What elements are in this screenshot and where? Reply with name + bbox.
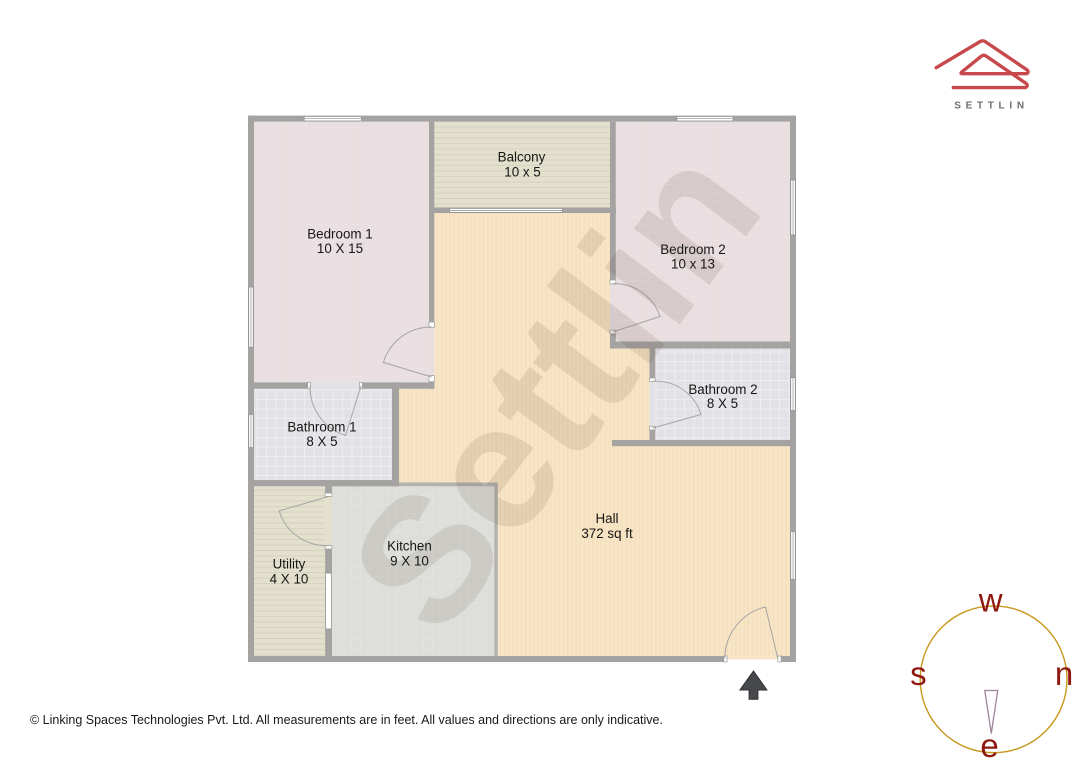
svg-text:© Linking Spaces Technologies: © Linking Spaces Technologies Pvt. Ltd. … (30, 713, 663, 727)
svg-text:Bathroom 2: Bathroom 2 (688, 382, 757, 397)
svg-text:10 x 13: 10 x 13 (671, 256, 715, 271)
svg-text:w: w (978, 582, 1003, 619)
svg-text:10 x 5: 10 x 5 (504, 164, 540, 179)
svg-text:8 X 5: 8 X 5 (306, 434, 337, 449)
svg-text:Hall: Hall (595, 511, 618, 526)
svg-text:372 sq ft: 372 sq ft (581, 526, 633, 541)
svg-text:Bedroom 1: Bedroom 1 (307, 227, 373, 242)
svg-text:e: e (980, 727, 998, 764)
svg-text:Balcony: Balcony (498, 149, 546, 164)
svg-text:Bathroom 1: Bathroom 1 (287, 420, 356, 435)
svg-text:10 X 15: 10 X 15 (317, 241, 363, 256)
svg-text:Utility: Utility (273, 556, 306, 571)
svg-text:s: s (910, 655, 927, 692)
svg-text:Kitchen: Kitchen (387, 539, 432, 554)
svg-text:n: n (1055, 655, 1073, 692)
svg-text:SETTLIN: SETTLIN (954, 101, 1029, 112)
svg-text:9 X 10: 9 X 10 (390, 553, 429, 568)
svg-text:4 X 10: 4 X 10 (270, 572, 309, 587)
svg-text:Bedroom 2: Bedroom 2 (660, 242, 726, 257)
svg-text:8 X 5: 8 X 5 (707, 396, 738, 411)
